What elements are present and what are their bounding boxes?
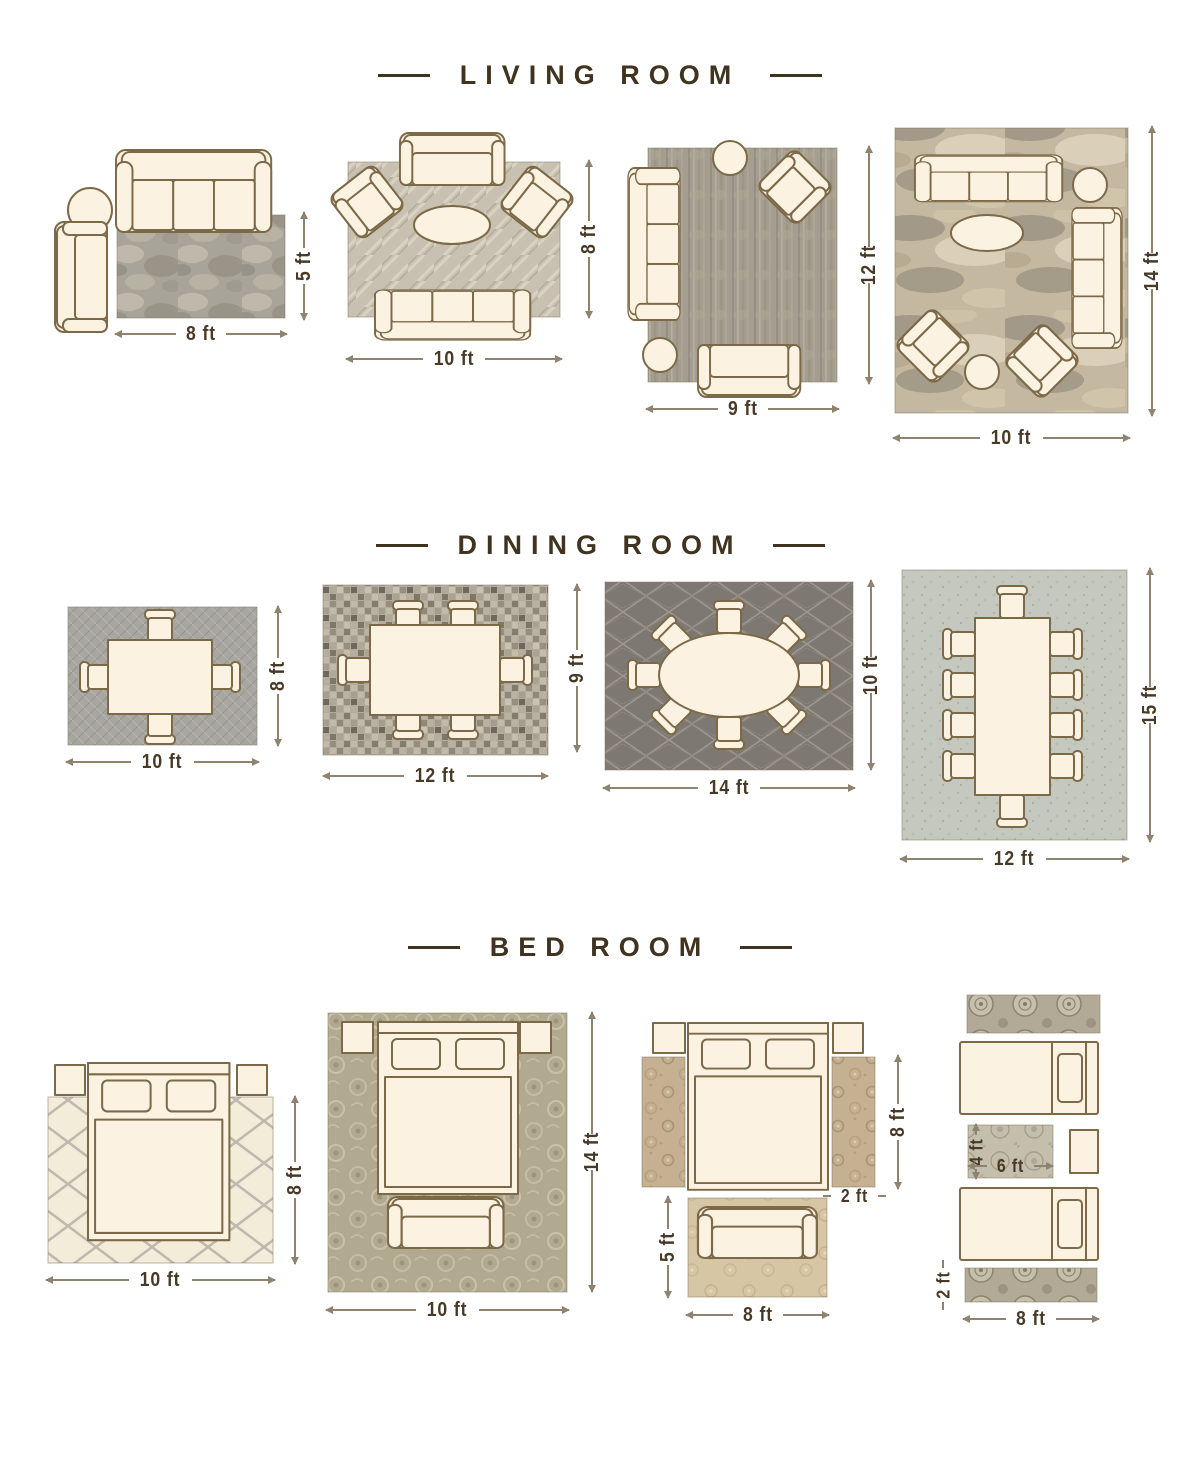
- dining-12x15-plan: [900, 555, 1135, 845]
- dimension-line: [192, 1279, 275, 1281]
- dimension-line: [646, 408, 718, 410]
- dimension-label: 8 ft: [579, 224, 599, 254]
- dining-12x9-plan: [323, 580, 553, 758]
- dimension-line: [1149, 723, 1151, 842]
- nightstand: [237, 1065, 267, 1095]
- dimension-line: [46, 1279, 129, 1281]
- dimension-label: 5 ft: [294, 251, 314, 281]
- dimension-line: [591, 1170, 593, 1292]
- rug-height-dimension: 8 ft: [578, 160, 600, 318]
- dining-chair: [997, 586, 1027, 618]
- dimension-line: [893, 437, 980, 439]
- sofa: [1072, 208, 1122, 348]
- dimension-label: 2 ft: [840, 1187, 867, 1205]
- dimension-line: [897, 1055, 899, 1104]
- dimension-line: [303, 284, 305, 320]
- section-title-bed-room: BED ROOM: [0, 932, 1200, 963]
- sofa: [628, 168, 680, 320]
- oval-dining-table: [659, 633, 799, 717]
- dimension-label: 8 ft: [743, 1305, 773, 1325]
- dining-room-title: DINING ROOM: [458, 530, 743, 561]
- rug-height-dimension: 9 ft: [566, 584, 588, 752]
- dimension-label: 8 ft: [268, 661, 288, 691]
- dimension-line: [346, 358, 423, 360]
- dimension-line: [1149, 568, 1151, 687]
- dimension-line: [760, 787, 855, 789]
- round-side-table: [713, 141, 747, 175]
- bed-room-title: BED ROOM: [490, 932, 711, 963]
- dining-chair: [798, 660, 830, 690]
- round-ottoman: [643, 338, 677, 372]
- nightstand: [342, 1022, 373, 1053]
- runner-rug: [965, 1268, 1097, 1302]
- rug-height-dimension: 12 ft: [858, 146, 880, 384]
- loveseat: [55, 222, 107, 332]
- title-rule-left: [378, 74, 430, 77]
- dining-chair: [338, 655, 370, 685]
- layout-dining-12x15: 15 ft 12 ft: [900, 555, 1200, 880]
- dimension-line: [323, 775, 404, 777]
- dining-chair: [714, 717, 744, 749]
- dimension-line: [667, 1265, 669, 1298]
- dimension-line: [277, 694, 279, 746]
- dining-chair: [1050, 751, 1082, 781]
- layout-living-8x5: 5 ft 8 ft: [50, 148, 350, 353]
- dining-chair: [943, 629, 975, 659]
- dimension-line: [870, 693, 872, 770]
- runner-width-dimension: 2 ft: [825, 1187, 883, 1205]
- rug-width-dimension: 10 ft: [346, 349, 562, 369]
- dimension-label: 2 ft: [934, 1271, 952, 1298]
- dimension-line: [868, 146, 870, 247]
- nightstand: [1070, 1130, 1098, 1173]
- layout-living-10x14: 14 ft 10 ft: [885, 110, 1200, 455]
- dimension-label: 12 ft: [415, 766, 456, 786]
- title-rule-left: [376, 544, 428, 547]
- dimension-line: [603, 787, 698, 789]
- accent-rug-width-dimension: 6 ft: [968, 1157, 1053, 1175]
- sofa: [915, 155, 1062, 202]
- dimension-line: [485, 358, 562, 360]
- dimension-line: [588, 257, 590, 318]
- dimension-label: 15 ft: [1140, 685, 1160, 726]
- rug-width-dimension: 8 ft: [115, 324, 287, 344]
- rug-height-dimension: 5 ft: [293, 212, 315, 320]
- bed-10x14-plan: [325, 1010, 575, 1300]
- round-ottoman: [965, 355, 999, 389]
- nightstand: [653, 1023, 685, 1053]
- dimension-line: [1043, 437, 1130, 439]
- dimension-line: [975, 1124, 977, 1135]
- dimension-label: 10 ft: [142, 752, 183, 772]
- dimension-line: [942, 1260, 944, 1268]
- dining-14x10-plan: [600, 580, 858, 774]
- dining-table: [370, 625, 500, 715]
- bed-10x8-plan: [40, 1058, 280, 1270]
- dimension-label: 14 ft: [709, 778, 750, 798]
- dimension-label: 10 ft: [434, 349, 475, 369]
- living-10x14-plan: [885, 110, 1137, 420]
- runner-rug: [967, 995, 1100, 1033]
- dining-chair: [1050, 710, 1082, 740]
- dining-10x8-plan: [60, 600, 265, 752]
- runner-rug: [832, 1057, 875, 1187]
- dimension-label: 9 ft: [567, 653, 587, 683]
- layout-dining-12x9: 9 ft 12 ft: [323, 580, 623, 795]
- section-title-living-room: LIVING ROOM: [0, 60, 1200, 91]
- dimension-line: [686, 1314, 733, 1316]
- nightstand: [55, 1065, 85, 1095]
- dimension-line: [326, 1309, 416, 1311]
- dining-chair: [943, 710, 975, 740]
- layout-bed-runners: 8 ft 2 ft 5 ft 8 ft: [625, 1015, 925, 1335]
- dimension-line: [294, 1096, 296, 1162]
- dining-table: [108, 640, 212, 714]
- dimension-line: [667, 1196, 669, 1229]
- dimension-line: [66, 761, 131, 763]
- dimension-line: [277, 606, 279, 658]
- dimension-line: [1046, 858, 1129, 860]
- rug-width-dimension: 12 ft: [900, 849, 1129, 869]
- dimension-label: 8 ft: [888, 1107, 908, 1137]
- dimension-label: 8 ft: [1016, 1309, 1046, 1329]
- runner-height-dimension: 2 ft: [932, 1261, 954, 1309]
- rug-height-dimension: 14 ft: [581, 1012, 603, 1292]
- layout-bed-10x8: 8 ft 10 ft: [40, 1058, 340, 1303]
- foot-rug-height-dimension: 5 ft: [657, 1196, 679, 1298]
- sofa: [116, 150, 271, 232]
- dimension-line: [479, 1309, 569, 1311]
- rug-width-dimension: 10 ft: [46, 1270, 275, 1290]
- foot-bench: [388, 1197, 504, 1248]
- living-room-title: LIVING ROOM: [460, 60, 741, 91]
- loveseat: [400, 133, 505, 185]
- rug-width-dimension: 14 ft: [603, 778, 855, 798]
- dimension-label: 10 ft: [991, 428, 1032, 448]
- title-rule-left: [408, 946, 460, 949]
- rug-height-dimension: 8 ft: [267, 606, 289, 746]
- loveseat: [698, 345, 800, 397]
- runner-height-dimension: 8 ft: [887, 1055, 909, 1189]
- dimension-label: 9 ft: [728, 399, 758, 419]
- title-rule-right: [773, 544, 825, 547]
- dimension-label: 10 ft: [861, 655, 881, 696]
- dimension-line: [591, 1012, 593, 1134]
- dining-chair: [628, 660, 660, 690]
- rug-height-dimension: 15 ft: [1139, 568, 1161, 842]
- dimension-label: 8 ft: [285, 1165, 305, 1195]
- rug-size-guide: LIVING ROOM 5 ft 8 ft: [0, 0, 1200, 1467]
- twin-bed: [960, 1042, 1098, 1114]
- sofa: [375, 290, 530, 340]
- runner-rug: [642, 1057, 685, 1187]
- dimension-line: [878, 1195, 886, 1197]
- dining-chair: [997, 795, 1027, 827]
- dimension-line: [576, 686, 578, 752]
- runner-width-dimension: 8 ft: [963, 1309, 1099, 1329]
- dimension-label: 5 ft: [658, 1232, 678, 1262]
- dimension-line: [115, 333, 176, 335]
- oval-coffee-table: [414, 206, 490, 244]
- dimension-line: [870, 580, 872, 657]
- foot-rug-width-dimension: 8 ft: [686, 1305, 829, 1325]
- dining-chair: [500, 655, 532, 685]
- dining-chair: [1050, 629, 1082, 659]
- dimension-label: 6 ft: [997, 1157, 1024, 1175]
- dimension-line: [897, 1140, 899, 1189]
- living-8x5-plan: [50, 148, 288, 338]
- dimension-label: 14 ft: [1142, 251, 1162, 292]
- dimension-line: [900, 858, 983, 860]
- rug-height-dimension: 14 ft: [1141, 126, 1163, 416]
- bed: [378, 1022, 518, 1194]
- dimension-line: [576, 584, 578, 650]
- dimension-line: [226, 333, 287, 335]
- rug-width-dimension: 10 ft: [893, 428, 1130, 448]
- rug-width-dimension: 9 ft: [646, 399, 839, 419]
- oval-coffee-table: [951, 215, 1023, 251]
- nightstand: [520, 1022, 551, 1053]
- nightstand: [833, 1023, 863, 1053]
- dimension-line: [823, 1195, 831, 1197]
- dimension-line: [294, 1198, 296, 1264]
- dimension-line: [1151, 126, 1153, 253]
- title-rule-right: [740, 946, 792, 949]
- dimension-line: [1151, 289, 1153, 416]
- dimension-line: [467, 775, 548, 777]
- dimension-line: [942, 1302, 944, 1310]
- dining-chair: [145, 712, 175, 744]
- dining-chair: [1050, 670, 1082, 700]
- twin-beds-plan: [915, 985, 1150, 1307]
- layout-twin-beds-runners: 4 ft 6 ft 2 ft 8 ft: [915, 985, 1200, 1345]
- dimension-label: 8 ft: [186, 324, 216, 344]
- living-10x8-plan: [330, 125, 572, 343]
- dimension-label: 12 ft: [994, 849, 1035, 869]
- dimension-label: 12 ft: [859, 245, 879, 286]
- round-side-table: [1073, 168, 1107, 202]
- dimension-line: [1034, 1165, 1053, 1167]
- layout-bed-10x14: 14 ft 10 ft: [325, 1010, 625, 1325]
- dimension-line: [963, 1318, 1006, 1320]
- bed: [88, 1063, 229, 1240]
- living-9x12-plan: [620, 135, 872, 399]
- rug-width-dimension: 10 ft: [66, 752, 259, 772]
- dimension-line: [783, 1314, 830, 1316]
- dimension-line: [588, 160, 590, 221]
- rug-height-dimension: 8 ft: [284, 1096, 306, 1264]
- dining-chair: [714, 601, 744, 633]
- dimension-label: 10 ft: [140, 1270, 181, 1290]
- layout-dining-10x8: 8 ft 10 ft: [60, 600, 360, 785]
- dimension-line: [768, 408, 840, 410]
- title-rule-right: [770, 74, 822, 77]
- rug-width-dimension: 12 ft: [323, 766, 548, 786]
- layout-living-10x8: 8 ft 10 ft: [330, 125, 635, 375]
- layout-living-9x12: 12 ft 9 ft: [620, 135, 920, 435]
- dining-chair: [943, 751, 975, 781]
- dining-chair: [145, 610, 175, 642]
- dimension-label: 14 ft: [582, 1132, 602, 1173]
- dimension-line: [303, 212, 305, 248]
- foot-bench: [698, 1207, 817, 1258]
- rug-height-dimension: 10 ft: [860, 580, 882, 770]
- bed: [688, 1023, 828, 1190]
- dimension-line: [868, 283, 870, 384]
- dimension-line: [968, 1165, 987, 1167]
- rug-width-dimension: 10 ft: [326, 1300, 569, 1320]
- layout-dining-14x10: 10 ft 14 ft: [600, 580, 900, 810]
- dining-table: [975, 618, 1050, 795]
- dimension-line: [1056, 1318, 1099, 1320]
- twin-bed: [960, 1188, 1098, 1260]
- dimension-label: 10 ft: [427, 1300, 468, 1320]
- dimension-line: [194, 761, 259, 763]
- dining-chair: [943, 670, 975, 700]
